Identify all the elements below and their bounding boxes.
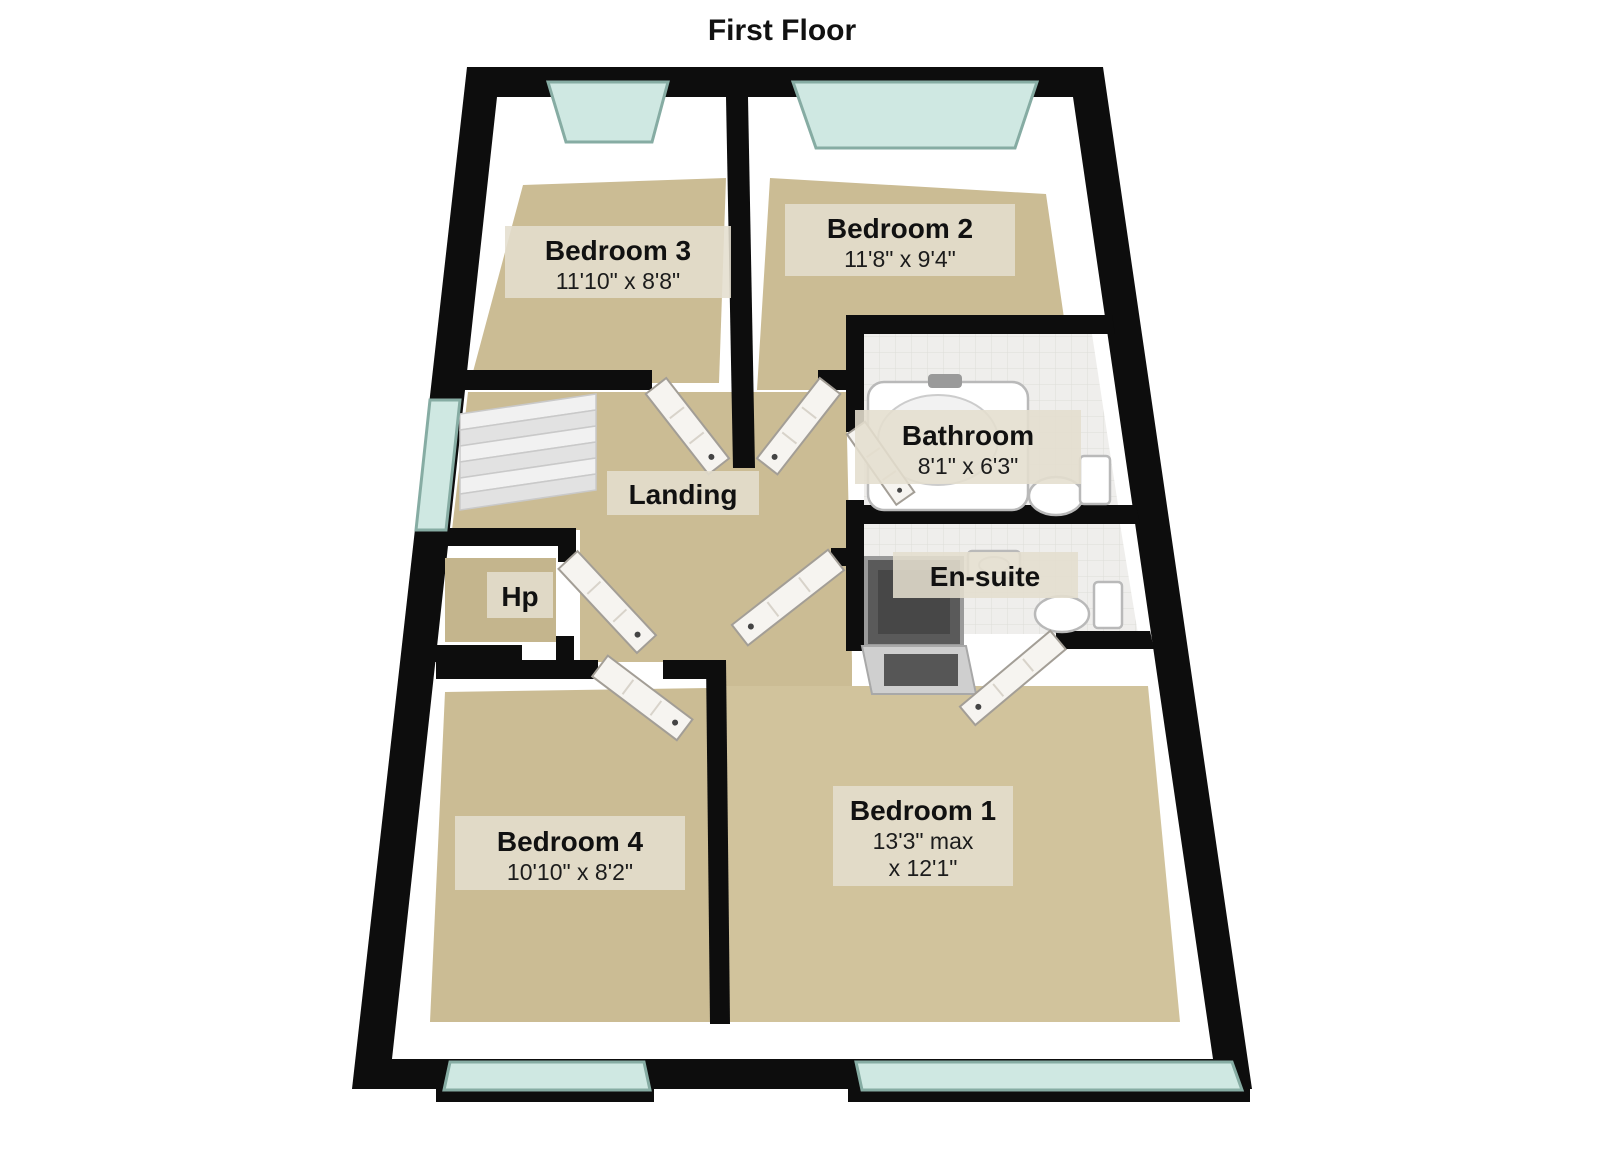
bathroom-name: Bathroom bbox=[902, 420, 1034, 451]
wall-hp-top bbox=[428, 528, 576, 546]
wall-bedroom4-top bbox=[436, 660, 598, 679]
ensuite-toilet-bowl bbox=[1035, 596, 1089, 632]
wall-ensuite-left bbox=[846, 523, 864, 650]
wall-bedroom4-bedroom1-divider bbox=[706, 660, 730, 1024]
wall-ensuite-bottom-right bbox=[1056, 631, 1154, 649]
bedroom3-window bbox=[548, 82, 668, 142]
shower-front-glass bbox=[884, 654, 958, 686]
bedroom2-name: Bedroom 2 bbox=[827, 213, 973, 244]
wall-bathroom-top bbox=[846, 315, 1115, 334]
wall-hp-right-lower bbox=[556, 636, 574, 662]
label-bedroom1: Bedroom 1 13'3" max x 12'1" bbox=[833, 786, 1013, 886]
bedroom4-window bbox=[444, 1062, 650, 1090]
corridor-floor bbox=[716, 662, 852, 686]
bedroom1-window bbox=[856, 1062, 1242, 1090]
wall-bedroom4-top-stub bbox=[663, 660, 726, 679]
ensuite-name: En-suite bbox=[930, 561, 1040, 592]
label-landing: Landing bbox=[607, 471, 759, 515]
bedroom1-dims: 13'3" max bbox=[873, 828, 974, 854]
label-bedroom3: Bedroom 3 11'10" x 8'8" bbox=[505, 226, 731, 298]
ensuite-toilet-tank bbox=[1094, 582, 1122, 628]
bathroom-toilet-tank bbox=[1080, 456, 1110, 504]
label-ensuite: En-suite bbox=[893, 552, 1078, 598]
staircase bbox=[460, 394, 596, 510]
page-title: First Floor bbox=[708, 14, 857, 47]
label-bedroom2: Bedroom 2 11'8" x 9'4" bbox=[785, 204, 1015, 276]
wall-bedroom3-bottom bbox=[452, 370, 652, 390]
bedroom1-dims2: x 12'1" bbox=[889, 855, 958, 881]
bedroom2-window bbox=[793, 82, 1037, 148]
bathroom-dims: 8'1" x 6'3" bbox=[918, 453, 1019, 479]
floorplan-page: First Floor bbox=[0, 0, 1600, 1164]
bathtub-taps-icon bbox=[928, 374, 962, 388]
bedroom2-dims: 11'8" x 9'4" bbox=[844, 246, 956, 272]
bedroom4-dims: 10'10" x 8'2" bbox=[507, 859, 633, 885]
landing-name: Landing bbox=[629, 479, 738, 510]
hp-name: Hp bbox=[501, 581, 538, 612]
label-bathroom: Bathroom 8'1" x 6'3" bbox=[855, 410, 1081, 484]
bedroom4-name: Bedroom 4 bbox=[497, 826, 644, 857]
bedroom1-name: Bedroom 1 bbox=[850, 795, 996, 826]
wall-hp-bottom bbox=[415, 645, 522, 662]
bedroom3-dims: 11'10" x 8'8" bbox=[556, 268, 680, 294]
label-bedroom4: Bedroom 4 10'10" x 8'2" bbox=[455, 816, 685, 890]
floorplan-canvas: First Floor bbox=[0, 0, 1600, 1164]
label-hp: Hp bbox=[487, 572, 553, 618]
bedroom3-name: Bedroom 3 bbox=[545, 235, 691, 266]
